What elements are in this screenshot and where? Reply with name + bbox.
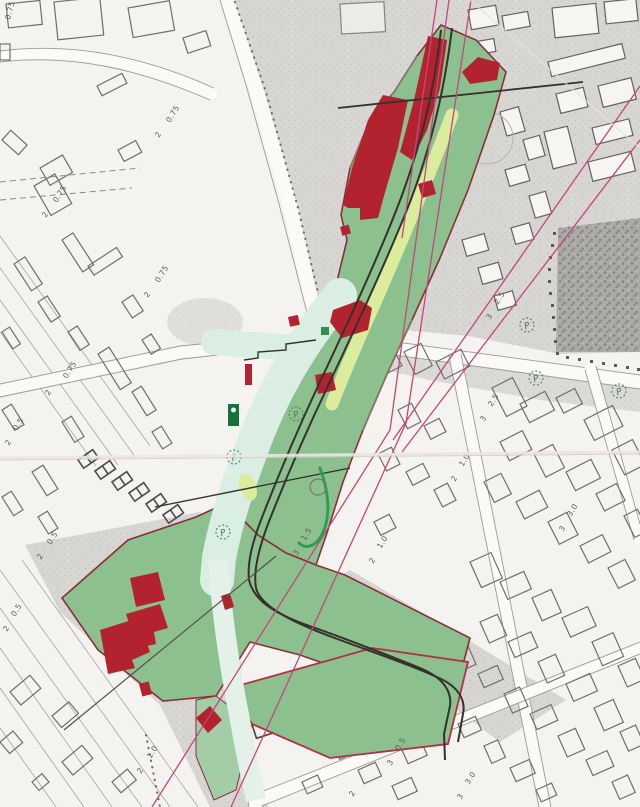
green-square (321, 327, 329, 335)
map-canvas: PPPPPP 0.750.7520.7520.7520.7520.520.520… (0, 0, 640, 807)
green-marker (228, 404, 239, 426)
scanned-zoning-map: PPPPPP 0.750.7520.7520.7520.7520.520.520… (0, 0, 640, 807)
cemetery-block (548, 218, 640, 371)
mint-junction-spur (214, 342, 295, 348)
